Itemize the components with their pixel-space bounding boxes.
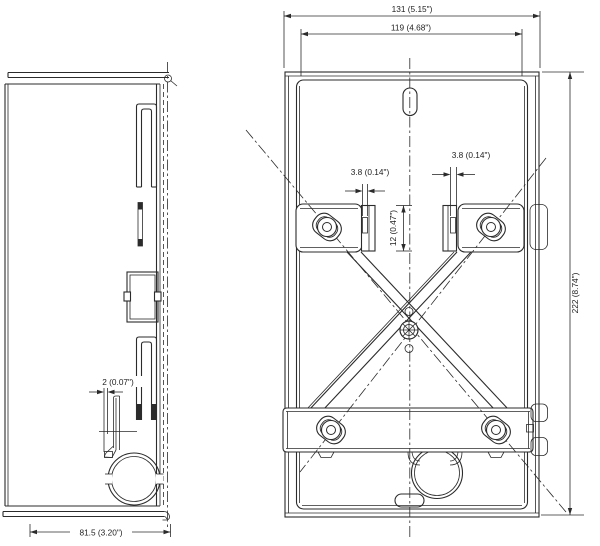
- drawing-canvas: 2 (0.07") 81.5 (3.20"): [0, 0, 600, 546]
- dim-overall-height-label: 222 (8.74"): [570, 272, 580, 313]
- dim-clip-gap: 2 (0.07"): [89, 376, 144, 452]
- dim-bracket-slot-height: 12 (0.47"): [388, 206, 412, 252]
- center-pivot: [400, 308, 418, 353]
- side-view: 2 (0.07") 81.5 (3.20"): [3, 62, 177, 538]
- knockout-circle-side: [105, 453, 164, 505]
- dim-inner-width-label: 119 (4.68"): [391, 23, 431, 33]
- dim-side-depth: 81.5 (3.20"): [30, 524, 171, 538]
- rail-notch-left: [318, 452, 334, 458]
- dim-overall-width: 131 (5.15"): [284, 4, 540, 68]
- upper-lance-slot: [137, 104, 157, 187]
- dim-clip-gap-label: 2 (0.07"): [102, 377, 134, 387]
- dim-inner-width: 119 (4.68"): [301, 23, 522, 77]
- side-body: [5, 62, 168, 530]
- construction-lines: [246, 58, 566, 538]
- rail-notch-right: [488, 452, 504, 458]
- drawing-page: 2 (0.07") 81.5 (3.20"): [0, 0, 600, 546]
- front-view: 131 (5.15") 119 (4.68") 3.8 (0.14"): [246, 4, 584, 538]
- clip-bracket: [99, 396, 137, 458]
- narrow-slot: [138, 203, 143, 247]
- dim-side-depth-label: 81.5 (3.20"): [79, 528, 122, 538]
- dim-overall-width-label: 131 (5.15"): [392, 4, 433, 14]
- rect-cutout: [124, 272, 161, 322]
- knockout-circle-front: [412, 448, 463, 499]
- dim-strap-slot-right-label: 3.8 (0.14"): [452, 150, 491, 160]
- side-bottom-flange: [3, 512, 170, 521]
- dim-strap-slot-left-label: 3.8 (0.14"): [351, 167, 390, 177]
- dim-bracket-slot-height-label: 12 (0.47"): [388, 210, 398, 246]
